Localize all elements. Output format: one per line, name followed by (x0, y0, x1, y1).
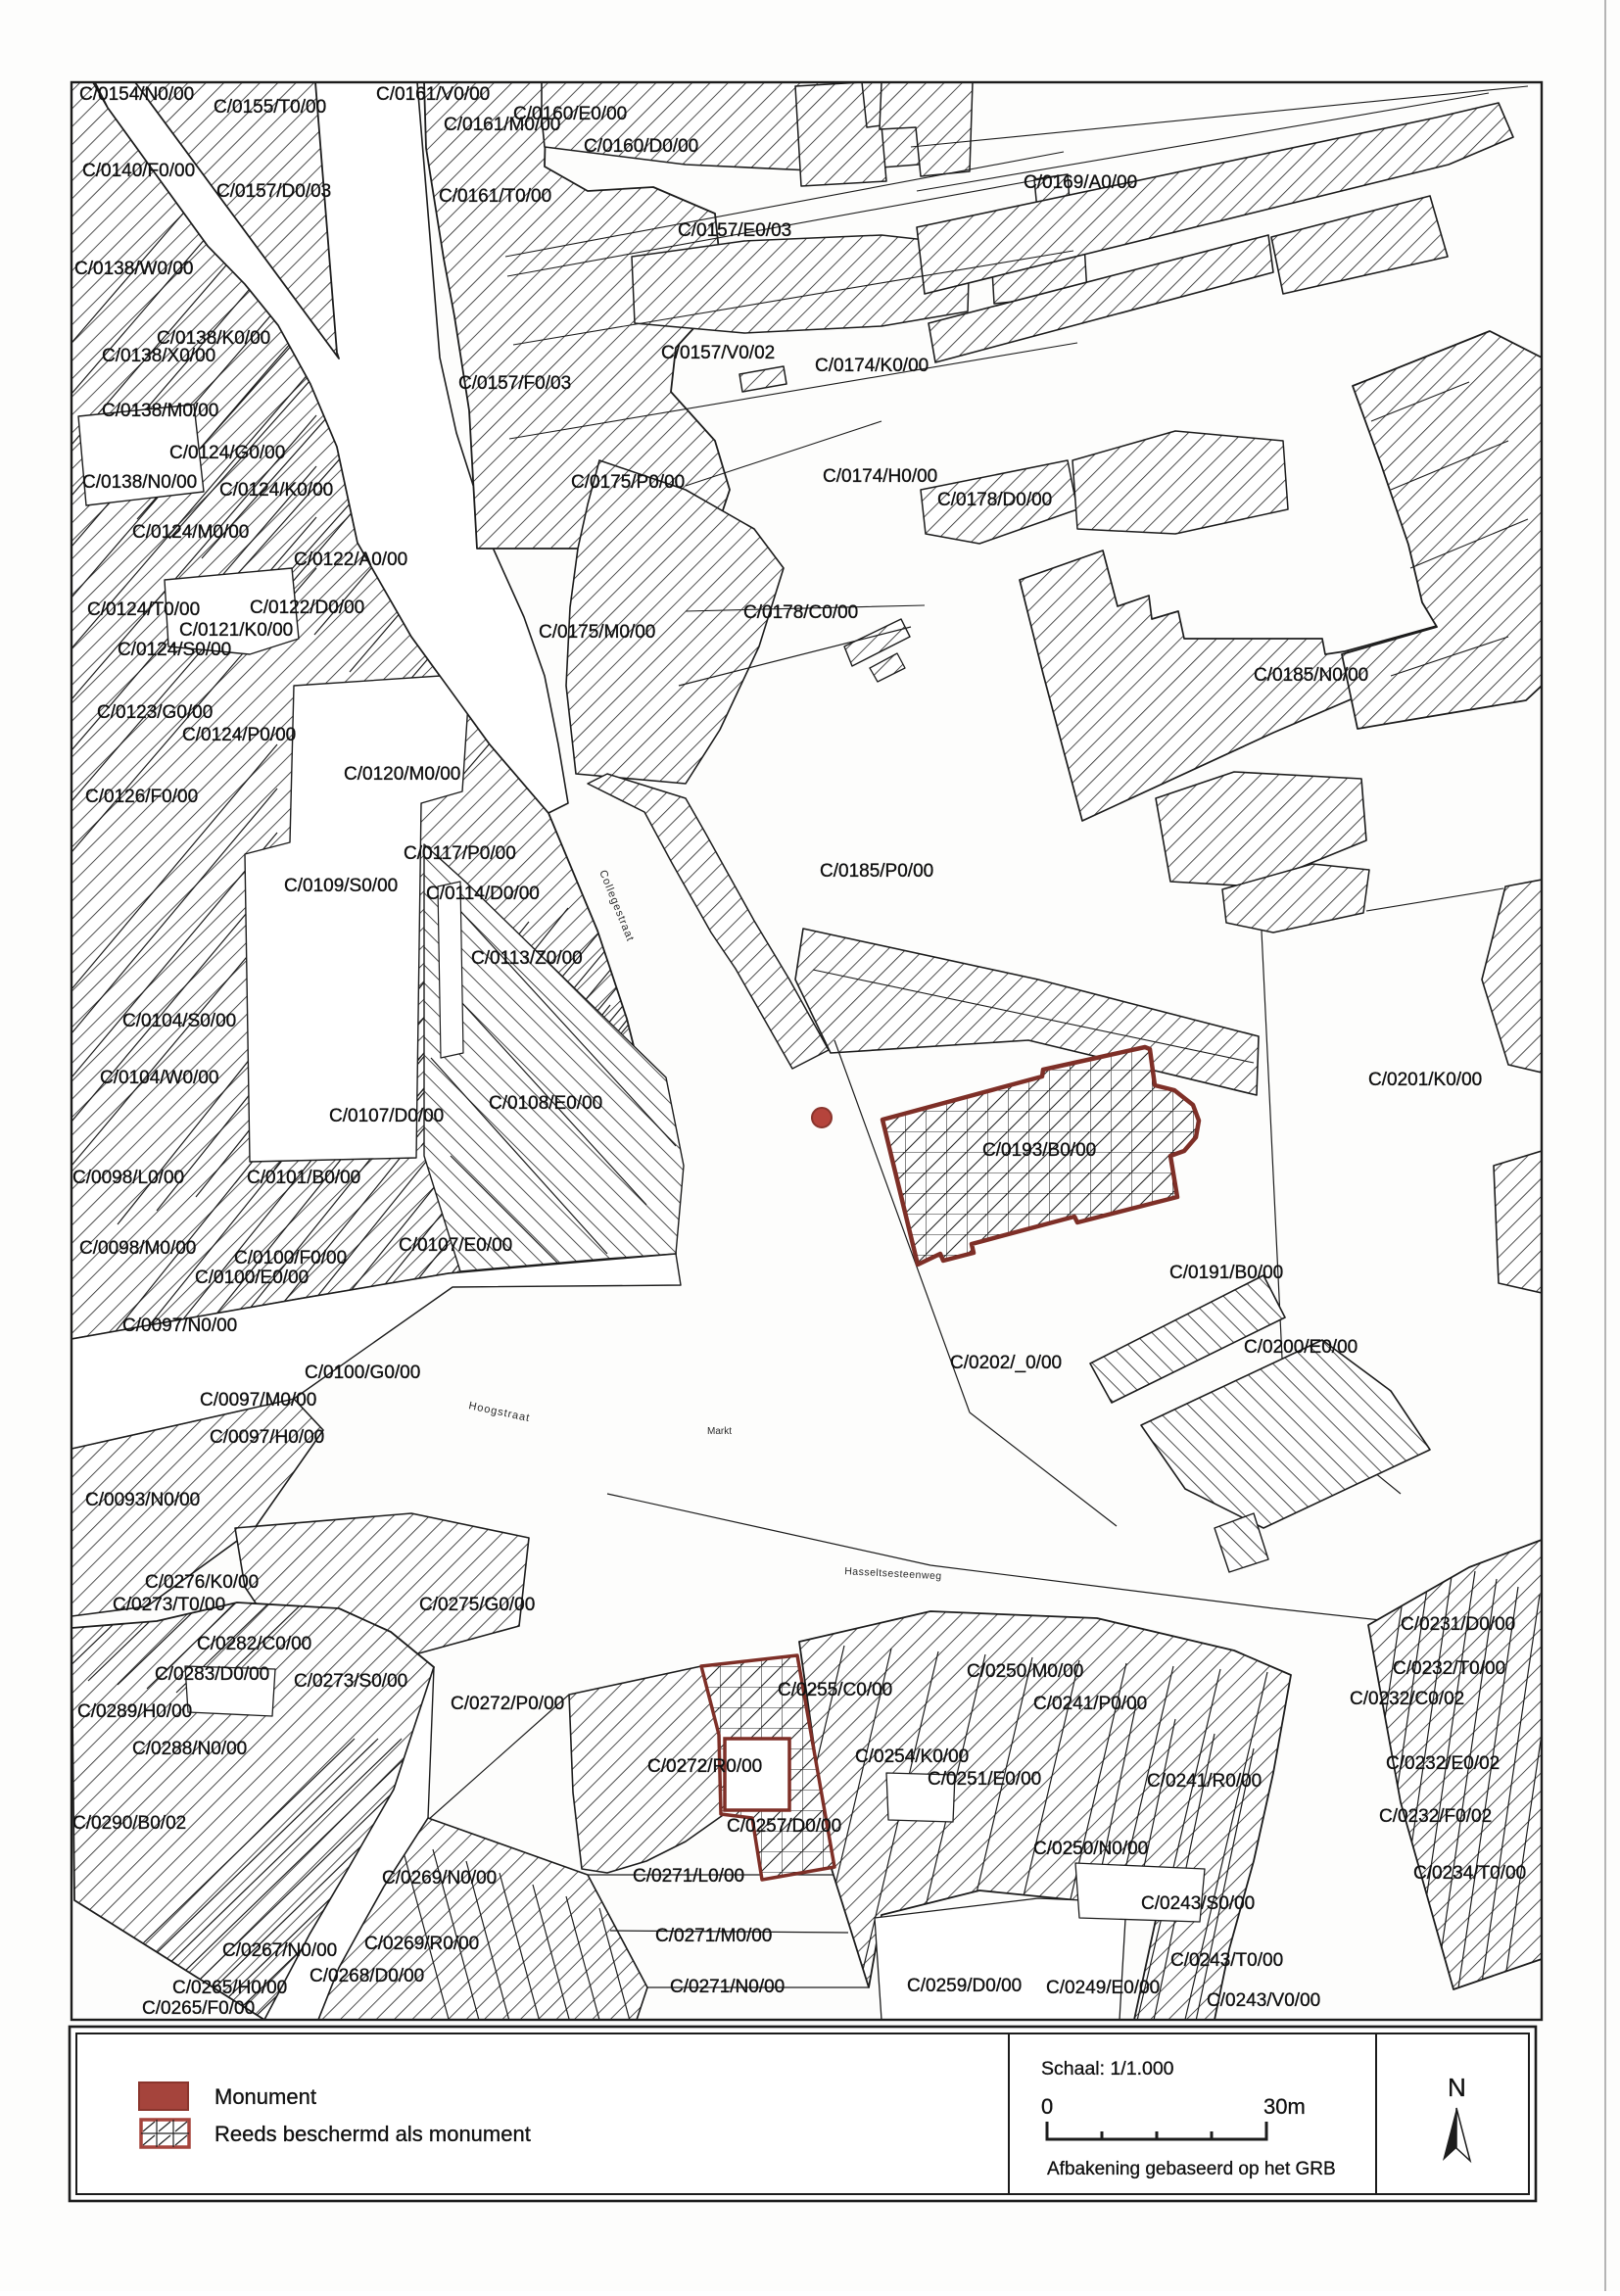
svg-text:Monument: Monument (214, 2084, 316, 2109)
svg-text:C/0185/P0/00: C/0185/P0/00 (820, 861, 933, 882)
svg-text:C/0255/C0/00: C/0255/C0/00 (778, 1680, 892, 1700)
svg-text:C/0269/N0/00: C/0269/N0/00 (382, 1868, 497, 1889)
svg-text:C/0104/S0/00: C/0104/S0/00 (122, 1011, 236, 1031)
svg-text:C/0271/N0/00: C/0271/N0/00 (670, 1977, 785, 1997)
svg-text:C/0273/S0/00: C/0273/S0/00 (294, 1671, 407, 1692)
svg-text:C/0249/E0/00: C/0249/E0/00 (1046, 1978, 1160, 1998)
svg-text:C/0271/M0/00: C/0271/M0/00 (655, 1926, 772, 1946)
svg-text:C/0288/N0/00: C/0288/N0/00 (132, 1739, 247, 1759)
svg-text:C/0276/K0/00: C/0276/K0/00 (145, 1572, 259, 1593)
svg-text:C/0122/D0/00: C/0122/D0/00 (250, 598, 364, 618)
svg-text:C/0126/F0/00: C/0126/F0/00 (85, 787, 198, 807)
svg-text:C/0267/N0/00: C/0267/N0/00 (222, 1940, 337, 1961)
svg-text:C/0290/B0/02: C/0290/B0/02 (72, 1813, 186, 1834)
svg-text:C/0250/N0/00: C/0250/N0/00 (1033, 1839, 1148, 1859)
svg-text:C/0234/T0/00: C/0234/T0/00 (1413, 1863, 1526, 1884)
svg-text:C/0109/S0/00: C/0109/S0/00 (284, 876, 398, 896)
svg-text:C/0114/D0/00: C/0114/D0/00 (426, 884, 540, 904)
svg-text:C/0161/M0/00: C/0161/M0/00 (444, 115, 560, 135)
svg-text:C/0100/E0/00: C/0100/E0/00 (195, 1268, 309, 1288)
svg-text:C/0175/P0/00: C/0175/P0/00 (571, 472, 685, 493)
svg-text:C/0097/N0/00: C/0097/N0/00 (122, 1315, 237, 1336)
svg-text:Reeds beschermd als monument: Reeds beschermd als monument (214, 2122, 531, 2146)
svg-text:C/0138/W0/00: C/0138/W0/00 (74, 259, 193, 279)
svg-text:C/0232/T0/00: C/0232/T0/00 (1393, 1658, 1505, 1679)
svg-text:C/0155/T0/00: C/0155/T0/00 (214, 97, 326, 118)
svg-text:C/0124/T0/00: C/0124/T0/00 (87, 599, 200, 620)
svg-text:C/0104/W0/00: C/0104/W0/00 (100, 1068, 218, 1088)
svg-text:C/0241/P0/00: C/0241/P0/00 (1033, 1694, 1147, 1714)
svg-text:C/0108/E0/00: C/0108/E0/00 (489, 1093, 602, 1114)
svg-text:C/0200/E0/00: C/0200/E0/00 (1244, 1337, 1358, 1358)
svg-text:C/0098/L0/00: C/0098/L0/00 (72, 1168, 184, 1188)
svg-text:C/0120/M0/00: C/0120/M0/00 (344, 764, 460, 785)
svg-text:C/0140/F0/00: C/0140/F0/00 (82, 161, 195, 181)
svg-text:C/0157/V0/02: C/0157/V0/02 (661, 343, 775, 363)
svg-text:C/0093/N0/00: C/0093/N0/00 (85, 1490, 200, 1510)
svg-text:C/0257/D0/00: C/0257/D0/00 (727, 1816, 841, 1837)
svg-text:C/0231/D0/00: C/0231/D0/00 (1401, 1614, 1515, 1635)
svg-text:C/0202/_0/00: C/0202/_0/00 (950, 1353, 1062, 1373)
svg-text:C/0154/N0/00: C/0154/N0/00 (79, 84, 194, 105)
svg-text:C/0174/H0/00: C/0174/H0/00 (823, 466, 937, 487)
svg-text:C/0175/M0/00: C/0175/M0/00 (539, 622, 655, 643)
svg-text:C/0243/V0/00: C/0243/V0/00 (1207, 1990, 1320, 2011)
svg-text:C/0101/B0/00: C/0101/B0/00 (247, 1168, 360, 1188)
svg-text:C/0123/G0/00: C/0123/G0/00 (97, 702, 213, 723)
svg-text:C/0107/D0/00: C/0107/D0/00 (329, 1106, 444, 1126)
svg-text:C/0124/G0/00: C/0124/G0/00 (169, 443, 285, 463)
svg-text:0: 0 (1041, 2094, 1053, 2119)
svg-text:C/0275/G0/00: C/0275/G0/00 (419, 1595, 535, 1615)
svg-text:C/0161/V0/00: C/0161/V0/00 (376, 84, 490, 105)
svg-text:C/0243/T0/00: C/0243/T0/00 (1170, 1950, 1283, 1971)
svg-text:C/0124/S0/00: C/0124/S0/00 (118, 640, 231, 660)
svg-text:C/0117/P0/00: C/0117/P0/00 (404, 843, 516, 864)
svg-text:C/0160/D0/00: C/0160/D0/00 (584, 136, 698, 157)
svg-text:C/0243/S0/00: C/0243/S0/00 (1141, 1893, 1255, 1914)
svg-text:C/0138/N0/00: C/0138/N0/00 (82, 472, 197, 493)
svg-text:C/0250/M0/00: C/0250/M0/00 (967, 1661, 1083, 1682)
svg-text:C/0097/H0/00: C/0097/H0/00 (210, 1427, 324, 1448)
svg-text:C/0178/D0/00: C/0178/D0/00 (937, 490, 1052, 510)
svg-text:C/0269/R0/00: C/0269/R0/00 (364, 1934, 479, 1954)
svg-text:C/0100/F0/00: C/0100/F0/00 (234, 1248, 347, 1268)
svg-text:C/0268/D0/00: C/0268/D0/00 (310, 1966, 424, 1986)
svg-text:C/0265/F0/00: C/0265/F0/00 (142, 1998, 255, 2019)
svg-text:C/0121/K0/00: C/0121/K0/00 (179, 620, 293, 641)
svg-text:C/0157/E0/03: C/0157/E0/03 (678, 220, 791, 241)
svg-text:Schaal: 1/1.000: Schaal: 1/1.000 (1041, 2058, 1174, 2080)
svg-text:C/0191/B0/00: C/0191/B0/00 (1169, 1263, 1283, 1283)
svg-text:C/0201/K0/00: C/0201/K0/00 (1368, 1070, 1482, 1090)
svg-text:C/0272/R0/00: C/0272/R0/00 (647, 1756, 762, 1777)
svg-text:C/0282/C0/00: C/0282/C0/00 (197, 1634, 311, 1654)
svg-text:C/0157/D0/03: C/0157/D0/03 (216, 181, 331, 202)
svg-text:C/0178/C0/00: C/0178/C0/00 (743, 602, 858, 623)
svg-text:C/0138/X0/00: C/0138/X0/00 (102, 346, 215, 366)
svg-text:C/0122/A0/00: C/0122/A0/00 (294, 550, 407, 570)
svg-text:C/0259/D0/00: C/0259/D0/00 (907, 1976, 1022, 1996)
svg-text:C/0097/M0/00: C/0097/M0/00 (200, 1390, 316, 1411)
svg-text:C/0232/F0/02: C/0232/F0/02 (1379, 1806, 1492, 1827)
svg-text:C/0232/E0/02: C/0232/E0/02 (1386, 1753, 1500, 1774)
svg-text:Markt: Markt (707, 1426, 732, 1437)
svg-text:C/0098/M0/00: C/0098/M0/00 (79, 1238, 196, 1259)
svg-text:C/0138/M0/00: C/0138/M0/00 (102, 401, 218, 421)
svg-text:Afbakening gebaseerd op het GR: Afbakening gebaseerd op het GRB (1047, 2159, 1336, 2179)
svg-text:C/0161/T0/00: C/0161/T0/00 (439, 186, 551, 207)
svg-text:C/0157/F0/03: C/0157/F0/03 (458, 373, 571, 394)
svg-text:C/0124/K0/00: C/0124/K0/00 (219, 480, 333, 501)
svg-text:30m: 30m (1263, 2094, 1306, 2119)
svg-text:C/0272/P0/00: C/0272/P0/00 (451, 1694, 564, 1714)
svg-text:C/0289/H0/00: C/0289/H0/00 (77, 1701, 192, 1722)
svg-text:N: N (1448, 2073, 1466, 2102)
svg-text:C/0169/A0/00: C/0169/A0/00 (1024, 172, 1137, 193)
svg-text:C/0124/P0/00: C/0124/P0/00 (182, 725, 296, 745)
svg-text:C/0100/G0/00: C/0100/G0/00 (305, 1363, 420, 1383)
svg-text:C/0283/D0/00: C/0283/D0/00 (155, 1664, 269, 1685)
svg-text:C/0193/B0/00: C/0193/B0/00 (982, 1140, 1096, 1161)
svg-text:C/0124/M0/00: C/0124/M0/00 (132, 522, 249, 543)
svg-text:C/0265/H0/00: C/0265/H0/00 (172, 1978, 287, 1998)
svg-text:C/0107/E0/00: C/0107/E0/00 (399, 1235, 512, 1256)
svg-text:C/0271/L0/00: C/0271/L0/00 (633, 1866, 744, 1887)
svg-text:C/0241/R0/00: C/0241/R0/00 (1147, 1771, 1262, 1792)
svg-text:C/0174/K0/00: C/0174/K0/00 (815, 356, 929, 376)
svg-text:C/0185/N0/00: C/0185/N0/00 (1254, 665, 1368, 686)
svg-text:C/0232/C0/02: C/0232/C0/02 (1350, 1689, 1464, 1709)
svg-text:C/0113/Z0/00: C/0113/Z0/00 (471, 948, 583, 969)
svg-text:C/0254/K0/00: C/0254/K0/00 (855, 1746, 969, 1767)
svg-text:C/0251/E0/00: C/0251/E0/00 (928, 1769, 1041, 1790)
svg-text:C/0273/T0/00: C/0273/T0/00 (113, 1595, 225, 1615)
